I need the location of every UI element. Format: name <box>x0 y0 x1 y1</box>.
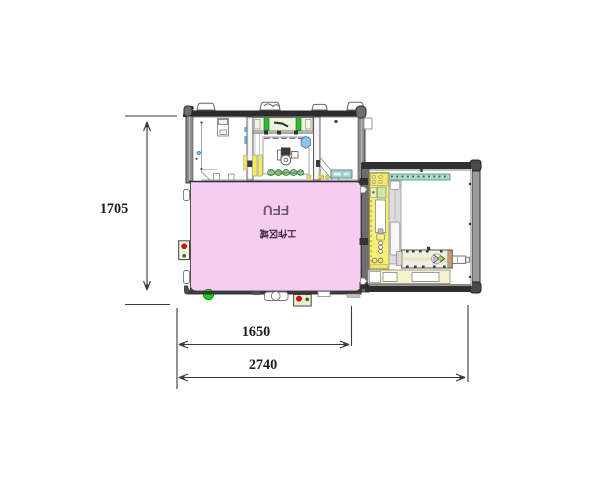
svg-text:工作区域: 工作区域 <box>259 229 297 240</box>
svg-text:1650: 1650 <box>242 324 270 340</box>
svg-text:FFU: FFU <box>263 202 289 217</box>
svg-text:1705: 1705 <box>100 201 128 217</box>
svg-text:2740: 2740 <box>249 357 277 373</box>
